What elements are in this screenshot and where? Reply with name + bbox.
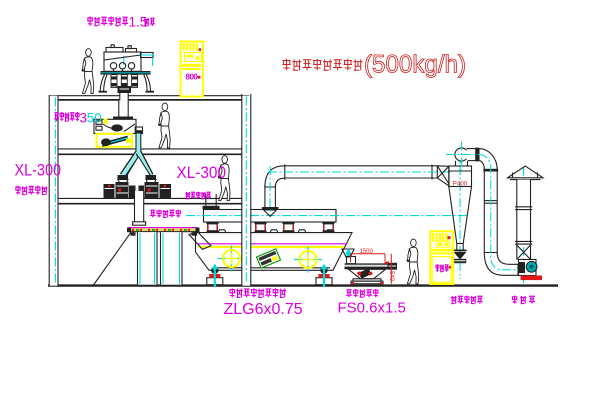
svg-text:ZLG6x0.75: ZLG6x0.75 bbox=[224, 301, 303, 318]
svg-text:(500kg/h): (500kg/h) bbox=[364, 51, 466, 79]
svg-text:50: 50 bbox=[87, 110, 102, 125]
svg-text:1500: 1500 bbox=[360, 249, 374, 255]
svg-text:800: 800 bbox=[186, 73, 199, 82]
svg-text:XL-300: XL-300 bbox=[177, 163, 227, 182]
svg-text:XL-300: XL-300 bbox=[15, 161, 62, 180]
svg-text:540: 540 bbox=[388, 271, 394, 282]
svg-text:1.5: 1.5 bbox=[129, 15, 148, 30]
svg-text:FS0.6x1.5: FS0.6x1.5 bbox=[338, 299, 406, 316]
